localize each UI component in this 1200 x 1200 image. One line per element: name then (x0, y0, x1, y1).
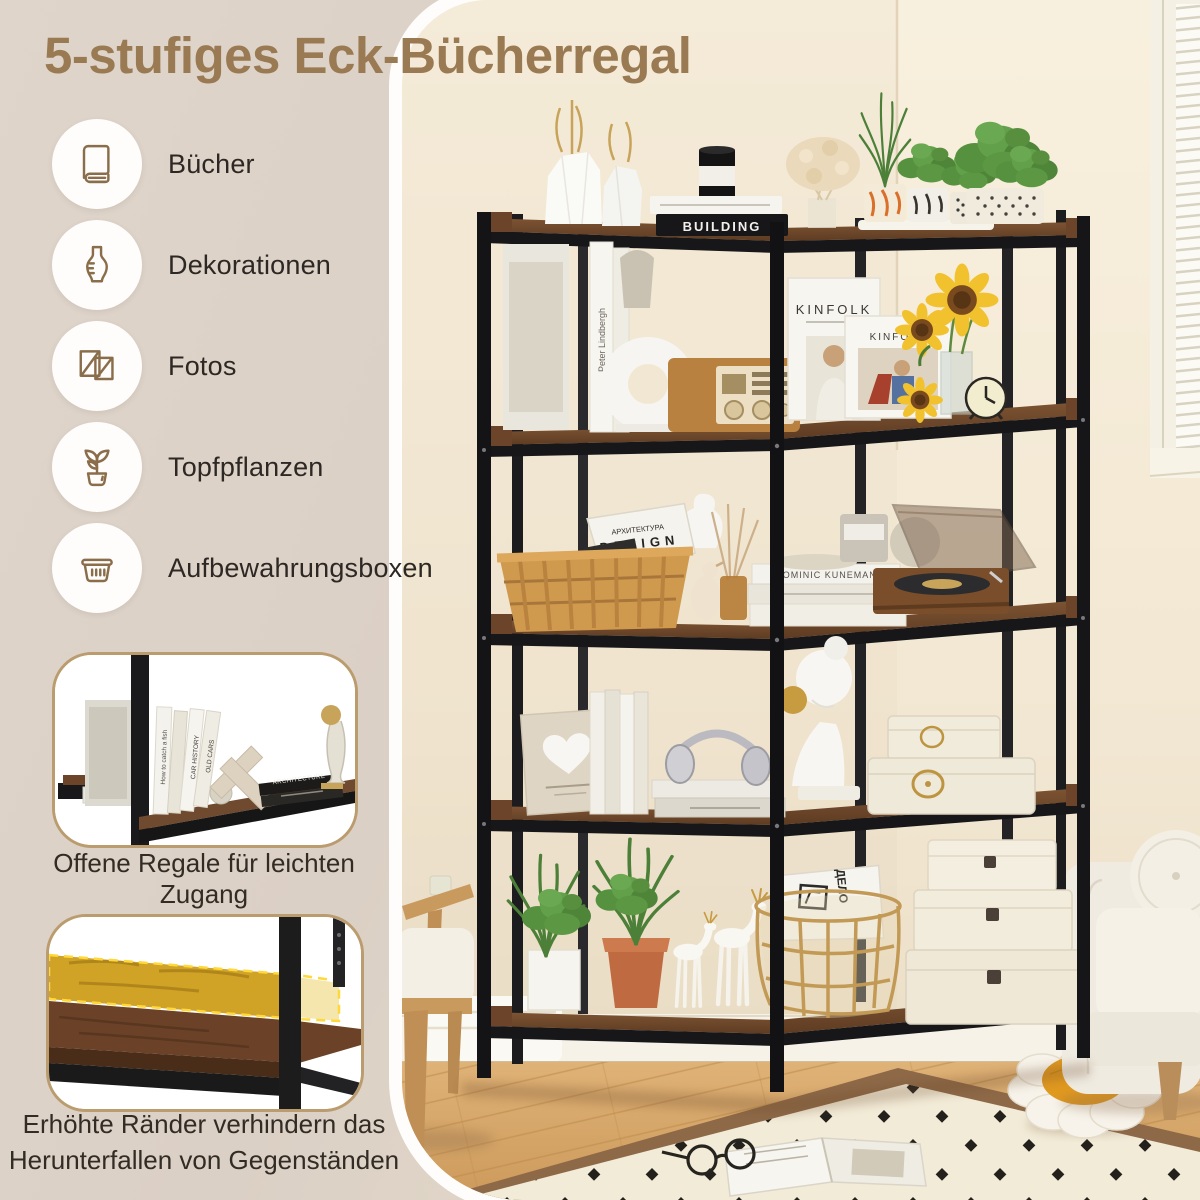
inset-raised-edges-caption: Erhöhte Ränder verhindern das Herunterfa… (2, 1106, 406, 1178)
book-spine-peter-lindbergh: Peter Lindbergh (597, 308, 607, 372)
window-blinds (1150, 0, 1200, 478)
storage-basket-icon (52, 523, 142, 613)
book-spine-dominic: DOMINIC KUNEMAN (775, 570, 877, 580)
potted-plant-icon (52, 422, 142, 512)
page-title: 5-stufiges Eck-Bücherregal (44, 26, 691, 85)
inset-raised-edges-illustration (49, 917, 361, 1109)
feature-label: Topfpflanzen (168, 452, 324, 483)
feature-label: Dekorationen (168, 250, 331, 281)
feature-books: Bücher (52, 118, 433, 210)
corner-bookshelf: BUILDING (462, 94, 1090, 1114)
book-icon (52, 119, 142, 209)
inset-open-shelves-caption: Offene Regale für leichten Zugang (6, 848, 402, 910)
feature-label: Bücher (168, 149, 255, 180)
feature-label: Fotos (168, 351, 237, 382)
room-photo: BUILDING (402, 0, 1200, 1200)
product-infographic: BUILDING (0, 0, 1200, 1200)
inset-open-shelves-illustration: How to catch a fish CAR HISTORY OLD CARS… (55, 655, 355, 845)
feature-list: Bücher Dekorationen Fotos (52, 118, 433, 623)
feature-photos: Fotos (52, 320, 433, 412)
vase-icon (52, 220, 142, 310)
inset-open-shelves-photo: How to catch a fish CAR HISTORY OLD CARS… (52, 652, 358, 848)
feature-storage: Aufbewahrungsboxen (52, 522, 433, 614)
magazine-title-kinfolk-large: KINFOLK (796, 302, 873, 317)
storage-boxes (906, 840, 1082, 1024)
picture-frames-icon (52, 321, 142, 411)
alarm-clock (966, 378, 1006, 419)
book-title-building: BUILDING (683, 219, 762, 234)
inset-raised-edges-photo (46, 914, 364, 1112)
room-photo-illustration: BUILDING (402, 0, 1200, 1200)
feature-plants: Topfpflanzen (52, 421, 433, 513)
feature-decorations: Dekorationen (52, 219, 433, 311)
feature-label: Aufbewahrungsboxen (168, 553, 433, 584)
